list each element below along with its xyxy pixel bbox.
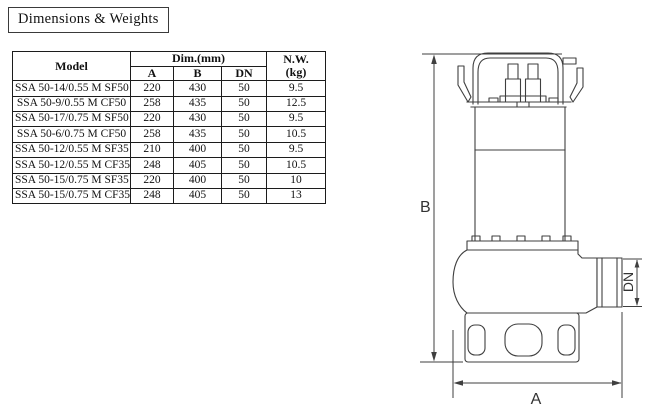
dim-b-cell: 405 [174, 158, 222, 173]
nw-cell: 9.5 [267, 111, 326, 126]
dn-arrow-up [635, 260, 640, 268]
dim-dn-cell: 50 [222, 96, 267, 111]
dim-b-cell: 435 [174, 96, 222, 111]
volute-outline [453, 250, 597, 313]
flange-plate [467, 241, 578, 250]
a-arrow-left [454, 380, 464, 386]
model-cell: SSA 50-12/0.55 M SF35 [13, 142, 131, 157]
col-header-model: Model [13, 52, 131, 81]
left-cable-gland-base [506, 79, 521, 102]
dim-a-cell: 258 [131, 96, 174, 111]
section-title: Dimensions & Weights [18, 11, 159, 27]
col-header-dim-group: Dim.(mm) [131, 52, 267, 67]
table-row: SSA 50-6/0.75 M CF50 258 435 50 10.5 [13, 127, 326, 142]
dim-b-cell: 435 [174, 127, 222, 142]
dim-dn-cell: 50 [222, 173, 267, 188]
model-cell: SSA 50-17/0.75 M SF50 [13, 111, 131, 126]
table-row: SSA 50-12/0.55 M SF35 210 400 50 9.5 [13, 142, 326, 157]
table-row: SSA 50-15/0.75 M SF35 220 400 50 10 [13, 173, 326, 188]
dim-dn-cell: 50 [222, 81, 267, 96]
dim-b-cell: 400 [174, 173, 222, 188]
nw-cell: 12.5 [267, 96, 326, 111]
dim-a-cell: 220 [131, 81, 174, 96]
dim-b-cell: 430 [174, 111, 222, 126]
volute-casing [453, 250, 622, 313]
dim-dn-cell: 50 [222, 158, 267, 173]
table-row: SSA 50-14/0.55 M SF50 220 430 50 9.5 [13, 81, 326, 96]
dim-dn-cell: 50 [222, 188, 267, 203]
cap-center-lug [517, 102, 529, 107]
model-cell: SSA 50-6/0.75 M CF50 [13, 127, 131, 142]
nw-cell: 10 [267, 173, 326, 188]
b-arrow-up [431, 55, 437, 65]
handle-side-tab [563, 58, 576, 64]
model-cell: SSA 50-9/0.55 M CF50 [13, 96, 131, 111]
left-cable-gland [508, 64, 518, 79]
cap-bolt-left [489, 98, 498, 102]
discharge-port [597, 258, 622, 307]
a-arrow-right [612, 380, 622, 386]
col-header-a: A [131, 67, 174, 81]
left-hook-bracket [458, 66, 471, 102]
dimension-dn: DN [620, 259, 642, 307]
dimensions-weights-table: Model Dim.(mm) N.W.(kg) A B DN SSA 50-14… [12, 51, 326, 204]
dim-a-cell: 258 [131, 127, 174, 142]
model-cell: SSA 50-14/0.55 M SF50 [13, 81, 131, 96]
right-hook-bracket [570, 68, 583, 102]
section-title-box: Dimensions & Weights [8, 7, 169, 33]
dim-a-cell: 220 [131, 111, 174, 126]
dim-a-cell: 248 [131, 158, 174, 173]
table-row: SSA 50-9/0.55 M CF50 258 435 50 12.5 [13, 96, 326, 111]
nw-cell: 9.5 [267, 142, 326, 157]
col-header-dn: DN [222, 67, 267, 81]
right-cable-gland [528, 64, 538, 79]
col-header-nw: N.W.(kg) [267, 52, 326, 81]
nw-cell: 10.5 [267, 158, 326, 173]
a-dimension-label: A [531, 391, 542, 408]
nw-cell: 9.5 [267, 81, 326, 96]
b-dimension-label: B [420, 199, 431, 216]
nw-label: N.W. [283, 52, 309, 66]
table-row: SSA 50-17/0.75 M SF50 220 430 50 9.5 [13, 111, 326, 126]
model-cell: SSA 50-15/0.75 M CF35 [13, 188, 131, 203]
motor-casing [475, 107, 565, 241]
dim-a-cell: 220 [131, 173, 174, 188]
cap-bolt-right [549, 98, 558, 102]
dim-b-cell: 400 [174, 142, 222, 157]
dim-b-cell: 405 [174, 188, 222, 203]
col-header-b: B [174, 67, 222, 81]
b-arrow-down [431, 352, 437, 362]
dim-dn-cell: 50 [222, 127, 267, 142]
motor-body [475, 107, 565, 241]
table-row: SSA 50-12/0.55 M CF35 248 405 50 10.5 [13, 158, 326, 173]
dim-a-cell: 248 [131, 188, 174, 203]
model-cell: SSA 50-12/0.55 M CF35 [13, 158, 131, 173]
pump-technical-drawing: B [405, 30, 650, 409]
dn-dimension-label: DN [620, 272, 636, 292]
dn-arrow-down [635, 298, 640, 306]
table-row: SSA 50-15/0.75 M CF35 248 405 50 13 [13, 188, 326, 203]
dim-b-cell: 430 [174, 81, 222, 96]
nw-unit-label: (kg) [286, 65, 307, 79]
right-cable-gland-base [526, 79, 541, 102]
pump-base [465, 313, 579, 362]
nw-cell: 10.5 [267, 127, 326, 142]
datasheet-page: Dimensions & Weights Model Dim.(mm) N.W.… [0, 0, 650, 409]
model-cell: SSA 50-15/0.75 M SF35 [13, 173, 131, 188]
dim-a-cell: 210 [131, 142, 174, 157]
dim-dn-cell: 50 [222, 111, 267, 126]
nw-cell: 13 [267, 188, 326, 203]
dim-dn-cell: 50 [222, 142, 267, 157]
